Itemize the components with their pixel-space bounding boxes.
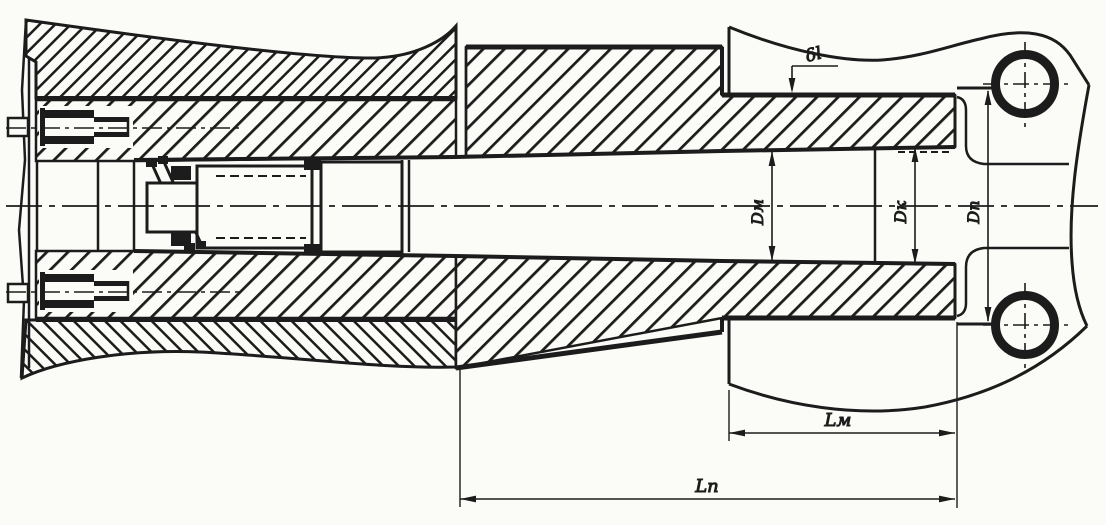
barrel-wall-top-exposed bbox=[466, 47, 955, 156]
delta-l-arrow bbox=[789, 78, 796, 93]
housing-bottom-slab bbox=[22, 320, 456, 378]
pin-sleeve-top-upper bbox=[44, 110, 94, 118]
bolt-cylinder-a bbox=[197, 166, 312, 248]
technical-drawing: δl Dм Dк Dп Lм bbox=[0, 0, 1106, 525]
bolt-block bbox=[147, 183, 197, 232]
dim-delta-l: δl bbox=[789, 44, 838, 93]
breech-tab-top bbox=[8, 118, 28, 136]
d-p-arrow-down bbox=[985, 307, 992, 322]
l-p-arrow-left bbox=[460, 496, 476, 503]
l-m-arrow-left bbox=[729, 430, 745, 437]
pin-rod-bottom-upper bbox=[94, 281, 128, 286]
breech-tab-bottom bbox=[8, 284, 28, 302]
bolt-cylinder-b bbox=[321, 162, 402, 252]
d-m-arrow-down bbox=[769, 246, 776, 261]
dim-d-k: Dк bbox=[891, 147, 918, 264]
d-k-label: Dк bbox=[891, 200, 910, 224]
firing-pin-top bbox=[39, 106, 133, 148]
pin-sleeve-bottom-upper bbox=[44, 274, 94, 282]
breech-housing bbox=[8, 20, 456, 378]
dim-d-m: Dм bbox=[748, 151, 775, 261]
pin-sleeve-top-lower bbox=[44, 136, 94, 144]
drawing-canvas: δl Dм Dк Dп Lм bbox=[0, 0, 1106, 525]
l-p-arrow-right bbox=[939, 496, 955, 503]
seal-ring-top bbox=[171, 166, 191, 180]
dim-l-p: Lп bbox=[460, 370, 955, 507]
d-p-label: Dп bbox=[964, 200, 983, 224]
l-p-label: Lп bbox=[694, 476, 719, 497]
delta-l-label: δl bbox=[804, 44, 824, 67]
pin-rod-bottom-lower bbox=[94, 296, 128, 301]
collar-lug-top bbox=[304, 159, 321, 170]
l-m-label: Lм bbox=[824, 410, 852, 431]
pin-sleeve-bottom-lower bbox=[44, 300, 94, 308]
cone-seal-1 bbox=[146, 158, 157, 167]
firing-pin-bottom bbox=[39, 270, 133, 312]
collar-lug-bottom bbox=[304, 244, 321, 255]
dim-d-p: Dп bbox=[964, 90, 991, 322]
pin-rod-top-upper bbox=[94, 117, 128, 122]
d-p-arrow-up bbox=[985, 90, 992, 105]
l-m-arrow-right bbox=[939, 430, 955, 437]
pin-rod-top-lower bbox=[94, 132, 128, 137]
dim-l-m: Lм bbox=[729, 322, 957, 508]
d-m-label: Dм bbox=[748, 199, 767, 226]
d-m-arrow-up bbox=[769, 151, 776, 166]
housing-top-slab bbox=[26, 20, 456, 98]
clamp-bottom-profile bbox=[729, 326, 1087, 411]
seal-ring-bottom bbox=[171, 232, 191, 246]
cone-seal-2 bbox=[158, 156, 168, 164]
barrel-wall-bottom-exposed bbox=[456, 256, 955, 368]
